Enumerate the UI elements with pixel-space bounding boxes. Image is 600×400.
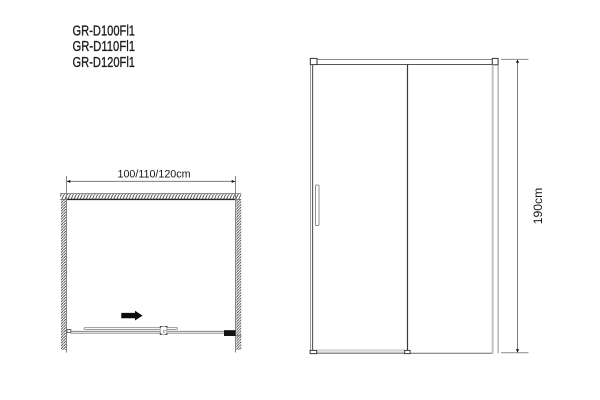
svg-text:100/110/120cm: 100/110/120cm xyxy=(118,168,191,180)
svg-text:GR-D120Fl1: GR-D120Fl1 xyxy=(73,55,136,71)
svg-text:GR-D100Fl1: GR-D100Fl1 xyxy=(73,24,136,40)
svg-text:GR-D110Fl1: GR-D110Fl1 xyxy=(73,39,136,55)
svg-text:190cm: 190cm xyxy=(531,188,545,225)
